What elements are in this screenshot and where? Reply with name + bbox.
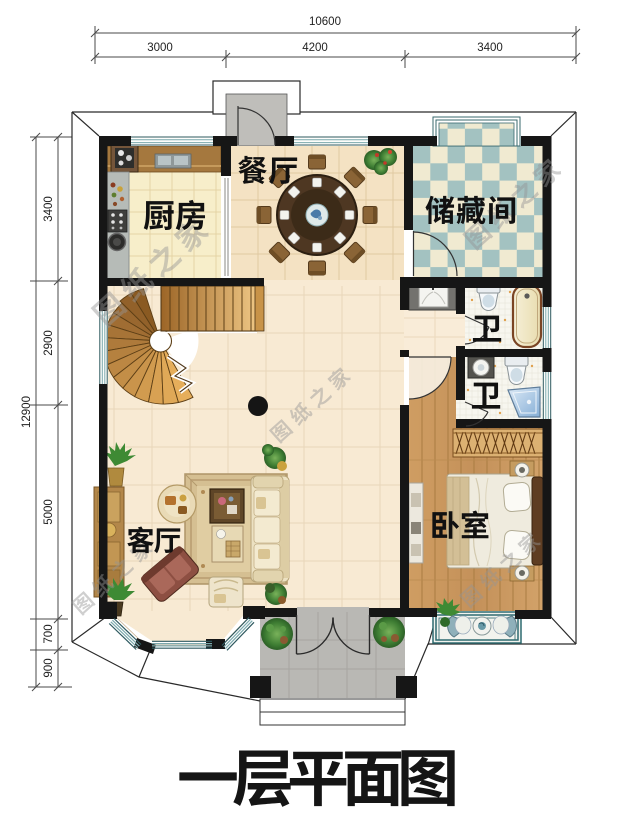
svg-text:10600: 10600 bbox=[309, 16, 341, 28]
svg-text:900: 900 bbox=[43, 658, 55, 677]
svg-text:3000: 3000 bbox=[147, 42, 173, 54]
svg-text:700: 700 bbox=[43, 624, 55, 643]
svg-text:3400: 3400 bbox=[477, 42, 503, 54]
svg-text:5000: 5000 bbox=[43, 499, 55, 525]
svg-text:12900: 12900 bbox=[21, 396, 33, 428]
svg-text:2900: 2900 bbox=[43, 330, 55, 356]
svg-text:3400: 3400 bbox=[43, 196, 55, 222]
svg-text:4200: 4200 bbox=[302, 42, 328, 54]
